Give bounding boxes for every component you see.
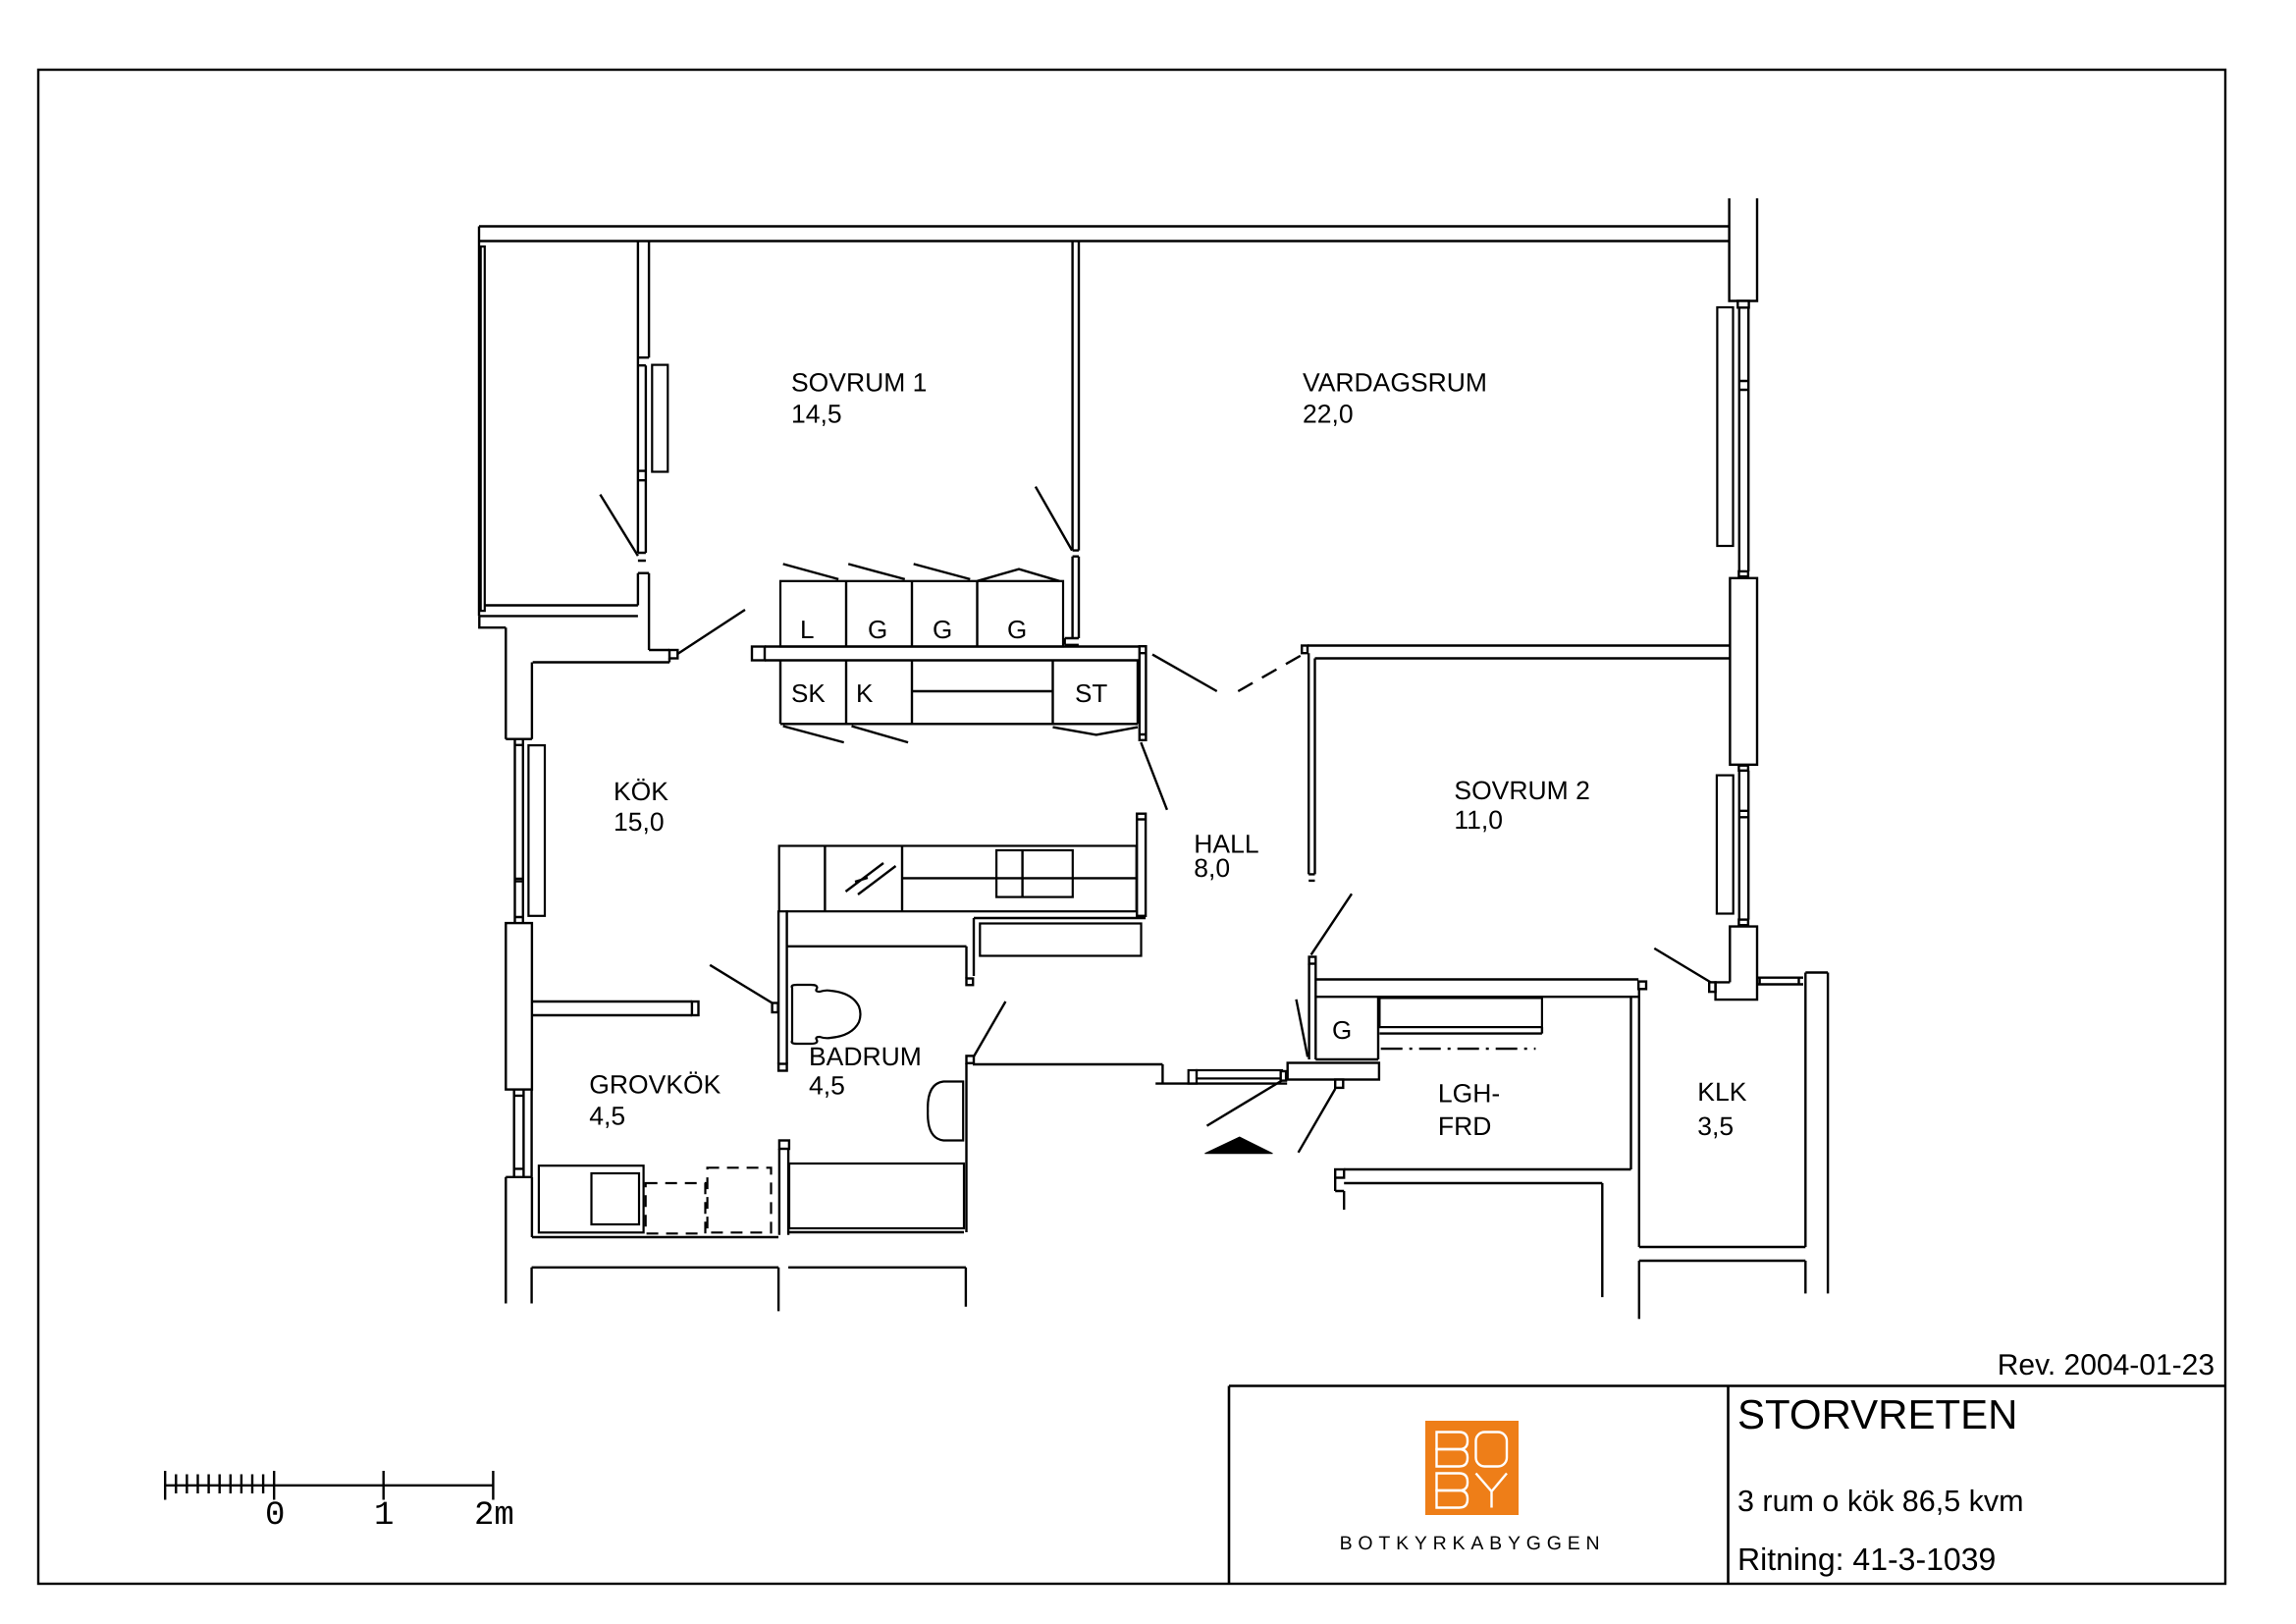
svg-text:VARDAGSRUM: VARDAGSRUM bbox=[1303, 367, 1487, 397]
svg-text:KLK: KLK bbox=[1697, 1077, 1746, 1107]
svg-text:15,0: 15,0 bbox=[614, 807, 665, 837]
svg-text:GROVKÖK: GROVKÖK bbox=[589, 1069, 721, 1099]
svg-text:Ritning: 41-3-1039: Ritning: 41-3-1039 bbox=[1737, 1542, 1996, 1577]
svg-text:K: K bbox=[856, 678, 874, 708]
svg-text:1: 1 bbox=[374, 1497, 394, 1535]
svg-text:BOTKYRKABYGGEN: BOTKYRKABYGGEN bbox=[1340, 1533, 1606, 1554]
svg-text:G: G bbox=[933, 615, 952, 644]
svg-text:G: G bbox=[1007, 615, 1027, 644]
svg-text:FRD: FRD bbox=[1438, 1111, 1491, 1141]
svg-text:BADRUM: BADRUM bbox=[809, 1042, 922, 1071]
svg-text:G: G bbox=[868, 615, 887, 644]
svg-text:8,0: 8,0 bbox=[1194, 853, 1230, 883]
svg-text:L: L bbox=[800, 615, 814, 644]
svg-text:22,0: 22,0 bbox=[1303, 400, 1354, 429]
svg-text:G: G bbox=[1332, 1015, 1352, 1045]
svg-text:LGH-: LGH- bbox=[1438, 1078, 1500, 1108]
svg-text:KÖK: KÖK bbox=[614, 777, 668, 806]
svg-text:11,0: 11,0 bbox=[1454, 805, 1503, 835]
svg-text:3,5: 3,5 bbox=[1697, 1111, 1734, 1141]
svg-text:14,5: 14,5 bbox=[791, 400, 842, 429]
svg-text:4,5: 4,5 bbox=[589, 1102, 625, 1131]
svg-text:4,5: 4,5 bbox=[809, 1071, 845, 1101]
svg-text:SOVRUM 2: SOVRUM 2 bbox=[1454, 776, 1589, 805]
svg-text:SK: SK bbox=[791, 678, 826, 708]
svg-text:STORVRETEN: STORVRETEN bbox=[1737, 1391, 2018, 1437]
svg-text:ST: ST bbox=[1075, 678, 1107, 708]
svg-text:Rev. 2004-01-23: Rev. 2004-01-23 bbox=[1998, 1349, 2215, 1381]
svg-text:0: 0 bbox=[265, 1497, 285, 1535]
svg-text:SOVRUM 1: SOVRUM 1 bbox=[791, 367, 927, 397]
svg-text:3 rum o kök 86,5 kvm: 3 rum o kök 86,5 kvm bbox=[1737, 1485, 2024, 1518]
svg-text:2m: 2m bbox=[474, 1497, 514, 1535]
